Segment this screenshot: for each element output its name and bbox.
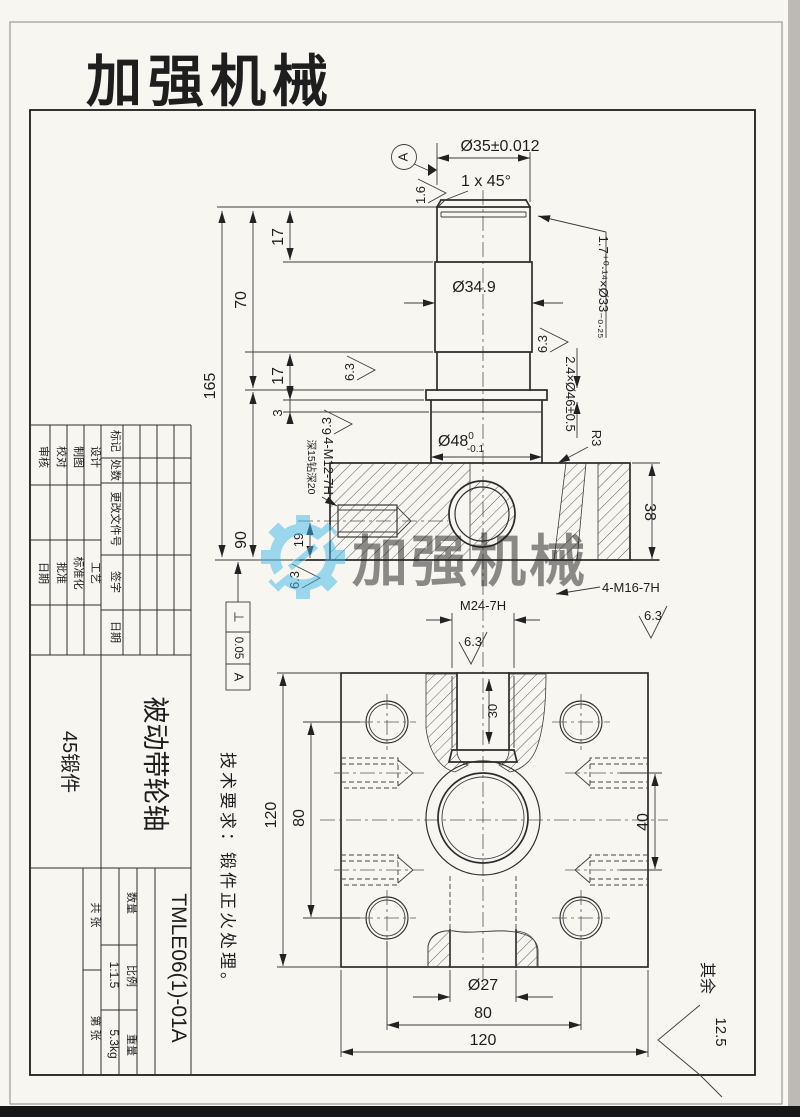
dim-d48-label: Ø480-0.1 [438,431,484,455]
dim-d48: Ø480-0.1 [431,431,542,457]
dim-120-bottom-label: 120 [470,1032,497,1049]
title-block-rev-label: 标记 [109,430,123,452]
title-block-role-label: 校对 [55,446,69,468]
dim-38: 38 [632,463,660,560]
title-block-rev-label: 日期 [109,621,122,643]
dim-38-label: 38 [641,503,658,521]
chamfer-note: 1 x 45° [439,173,511,206]
tolerance-datum: A [232,673,247,682]
dim-d35-label: Ø35±0.012 [460,138,539,155]
tolerance-value: 0.05 [232,637,244,659]
part-name-label: 被动带轮轴 [140,697,170,832]
thread-center-label: M24-7H [460,598,506,613]
dim-17-label: 17 [270,367,287,385]
dim-70-label: 70 [233,291,250,309]
datum-a-label: A [395,152,410,161]
dim-90-label: 90 [233,531,250,549]
weight-value: 5.3kg [107,1029,121,1058]
title-block-role-label: 设计 [89,446,102,468]
fillet-label: R3 [589,430,604,447]
dim-3-label: 3 [270,409,285,416]
title-block-role-label: 制图 [72,446,85,468]
groove-note-mid-label: 2.4×Ø46±0.5 [563,356,578,431]
roughness-value: 6.3 [644,608,662,623]
roughness-symbol: 6.3 [535,328,568,353]
scanned-drawing-page: 加强机械 审核 校对 制图 设计 日期 批准 标准化 工艺 标记 处数 更改文件… [0,0,800,1117]
fillet-note: R3 [558,430,604,463]
engineering-drawing: 加强机械 审核 校对 制图 设计 日期 批准 标准化 工艺 标记 处数 更改文件… [0,0,800,1117]
roughness-value: 6.3 [464,634,482,649]
datum-a-symbol: A [392,145,438,177]
technical-requirements: 技术要求：锻件正火处理。 [218,752,237,992]
m24-broken-section: 30 [426,673,546,772]
general-roughness-note: 其余 12.5 [658,962,729,1097]
general-roughness-prefix: 其余 [698,962,717,994]
general-roughness-value: 12.5 [712,1017,729,1046]
sheet-total-label: 共 张 [89,902,102,927]
dim-165-label: 165 [202,373,219,400]
company-logo: 加强机械 [86,50,334,113]
dim-120-left-label: 120 [263,802,280,829]
title-block: 审核 校对 制图 设计 日期 批准 标准化 工艺 标记 处数 更改文件号 签字 … [30,425,191,1075]
dim-d27-label: Ø27 [468,977,498,994]
roughness-symbol: 6.3 [639,606,667,638]
front-view: Ø35±0.012 A 1.6 1 x 45° 1.7⁺⁰·¹⁴×Ø33₋₀.₂… [202,138,667,690]
dim-d349: Ø34.9 [404,279,563,303]
thread-bottom-label: 4-M16-7H [602,580,660,595]
roughness-symbol: 6.3 [319,410,352,435]
dim-d349-label: Ø34.9 [452,279,496,296]
qty-label: 数量 [125,892,138,914]
bottom-view: 30 M24-7H 6.3 120 8 [263,598,668,1057]
side-threaded-holes [334,758,654,885]
roughness-value: 6.3 [319,417,334,435]
scale-value: 1:1.5 [107,962,121,989]
dim-d35: Ø35±0.012 [437,138,540,202]
roughness-value: 6.3 [342,363,357,381]
thread-side-label: 4-M12-7H [321,437,336,495]
roughness-symbol: 6.3 [342,356,375,381]
groove-note-top: 1.7⁺⁰·¹⁴×Ø33₋₀.₂₅ [538,216,611,338]
dim-80-bottom-label: 80 [474,1005,492,1022]
chamfer-label: 1 x 45° [461,173,511,190]
title-block-role-label: 批准 [55,562,69,584]
roughness-value: 6.3 [535,335,550,353]
section-hatch-right [598,463,630,560]
company-logo-text: 加强机械 [86,50,334,113]
dim-30-label: 30 [485,704,500,718]
perpendicularity-tolerance-frame: ⊥ 0.05 A [226,562,250,690]
tolerance-symbol: ⊥ [232,611,247,622]
watermark-text: 加强机械 [352,530,588,593]
scale-label: 比例 [125,965,139,987]
groove-note-mid: 2.4×Ø46±0.5 [563,348,578,438]
roughness-value: 1.6 [413,186,428,204]
title-block-rev-label: 处数 [109,459,122,481]
title-block-rev-label: 签字 [109,571,123,593]
weight-label: 重量 [125,1034,139,1056]
title-block-role-label: 日期 [37,562,50,584]
dim-80-left-label: 80 [291,809,308,827]
material-label: 45锻件 [58,731,81,793]
datum-triangle [428,164,437,176]
title-block-rev-label: 更改文件号 [109,492,123,547]
gear-logo-icon [261,515,345,599]
thread-side-depth-label: 深15钻深20 [305,440,318,495]
title-block-role-label: 审核 [37,446,51,468]
groove-note-top-label: 1.7⁺⁰·¹⁴×Ø33₋₀.₂₅ [596,236,611,339]
dim-17-label: 17 [270,228,287,246]
dim-40-label: 40 [635,813,652,831]
title-block-role-label: 工艺 [89,562,102,584]
title-block-role-label: 标准化 [72,557,86,590]
sheet-index-label: 第 张 [89,1015,103,1040]
drawing-number: TMLE06(1)-01A [167,893,190,1042]
bottom-view-dimensions: 120 80 40 Ø27 80 120 [263,673,662,1057]
